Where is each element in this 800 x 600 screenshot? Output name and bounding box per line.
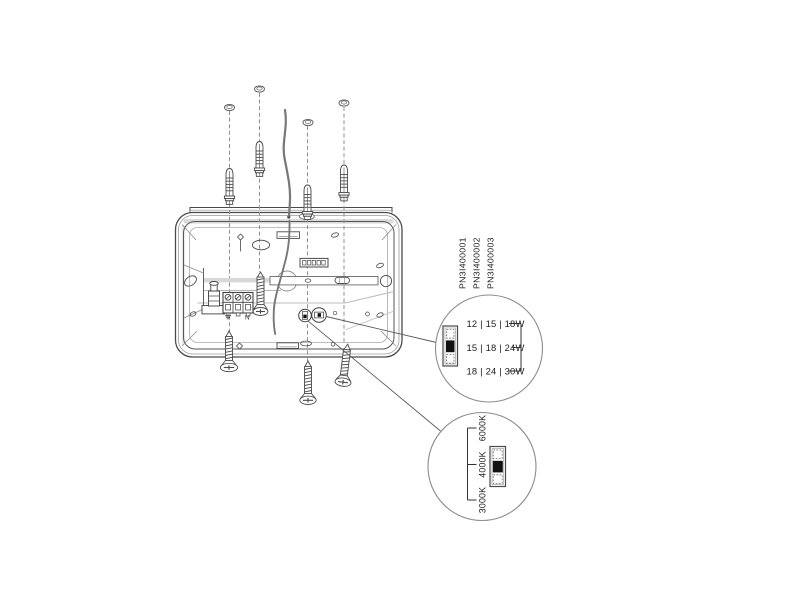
switch-position-selected <box>493 461 503 473</box>
mounting-bar <box>270 277 378 285</box>
wattage-dip-switch <box>443 326 458 366</box>
mounting-screw <box>300 361 316 404</box>
part-number-list: PN3I400001 PN3I400002 PN3I400003 <box>458 237 496 289</box>
wall-anchor <box>339 165 349 201</box>
diagram-canvas: N <box>0 0 800 600</box>
connector-block <box>300 258 328 267</box>
wall-anchor <box>224 169 234 205</box>
cct-callout: 6000K 4000K 3000K <box>428 413 536 521</box>
clamp-plate <box>202 306 225 314</box>
bar-connector <box>335 277 350 283</box>
wattage-callout: 12 | 15 | 18W 15 | 18 | 24W 18 | 24 | 30… <box>436 295 543 402</box>
cct-option: 3000K <box>478 487 488 513</box>
cable-clamp <box>209 291 220 306</box>
wattage-selector-switch <box>299 309 312 322</box>
wall-anchor <box>302 185 312 220</box>
part-number: PN3I400002 <box>472 237 482 289</box>
cct-option: 6000K <box>478 415 488 441</box>
cct-option: 4000K <box>478 451 488 477</box>
wall-anchor <box>254 142 264 177</box>
terminal-neutral-label: N <box>245 314 250 321</box>
switch-position-selected <box>446 340 455 352</box>
installation-diagram: N <box>0 0 800 600</box>
part-number: PN3I400003 <box>486 237 496 289</box>
cct-selector-switch <box>312 308 327 323</box>
part-number: PN3I400001 <box>458 237 468 289</box>
cct-dip-switch <box>490 447 506 487</box>
